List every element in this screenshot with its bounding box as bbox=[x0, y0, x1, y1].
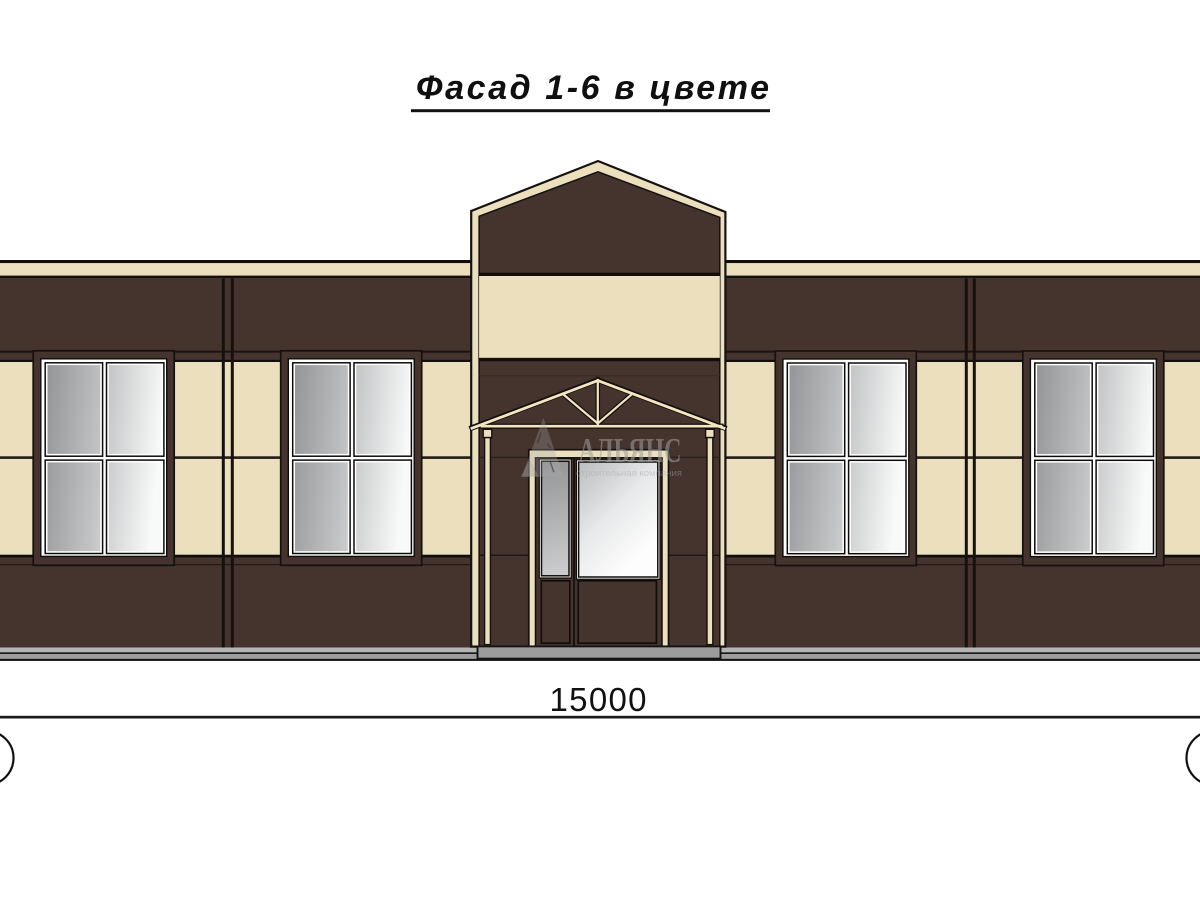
svg-text:АЛЬЯНС: АЛЬЯНС bbox=[579, 432, 682, 470]
svg-text:строительная компания: строительная компания bbox=[576, 468, 682, 479]
svg-text:15000: 15000 bbox=[550, 681, 647, 718]
